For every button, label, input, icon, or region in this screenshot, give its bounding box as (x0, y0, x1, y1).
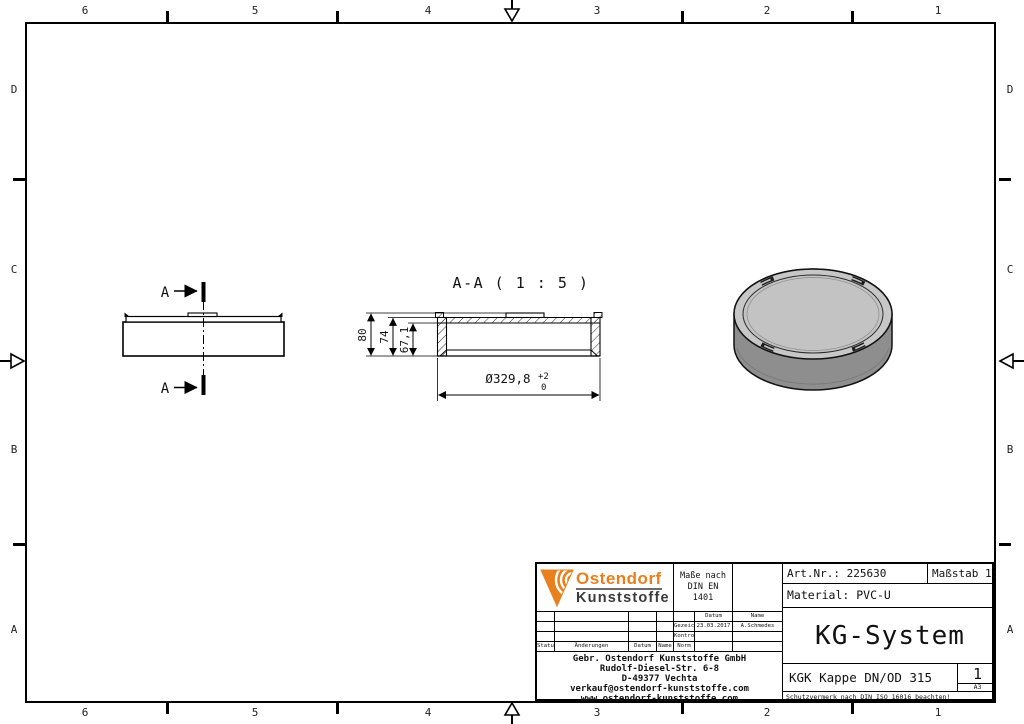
border-ref-top: 2 (757, 4, 777, 18)
centering-mark-bottom (503, 702, 521, 724)
rim-notch-mark (277, 313, 283, 318)
address-email: verkauf@ostendorf-kunststoffe.com (537, 684, 782, 694)
standard-reference: Maße nach DIN EN 1401 (674, 564, 733, 612)
sheet-number: 1 (958, 664, 996, 684)
revision-col-datum: Datum (695, 612, 733, 622)
company-address: Gebr. Ostendorf Kunststoffe GmbH Rudolf-… (537, 652, 782, 703)
border-ref-bottom: 5 (245, 706, 265, 720)
address-line: Rudolf-Diesel-Str. 6-8 (537, 664, 782, 674)
zone-tick (13, 543, 25, 546)
empty-cell (733, 564, 782, 612)
centering-mark-right (998, 352, 1024, 370)
address-line: Gebr. Ostendorf Kunststoffe GmbH (537, 654, 782, 664)
border-ref-top: 1 (928, 4, 948, 18)
border-ref-left: A (4, 623, 24, 637)
paper-format: A3 (958, 684, 996, 692)
brand-name: Ostendorf (576, 569, 662, 590)
section-view: A-A ( 1 : 5 ) 80 74 67,1 Ø329,8 +2 0 (356, 274, 602, 401)
standard-line: Maße nach (674, 571, 732, 582)
revision-row: Gezeichn. 23.03.2017 A.Schmedes (537, 622, 782, 632)
revision-row: Status Änderungen Datum Name Norm (537, 642, 782, 652)
rim-notch-mark (125, 313, 131, 318)
footer-status: Status (537, 642, 555, 652)
border-ref-top: 3 (587, 4, 607, 18)
border-ref-bottom: 4 (418, 706, 438, 720)
border-ref-top: 4 (418, 4, 438, 18)
border-ref-left: D (4, 83, 24, 97)
zone-tick (166, 11, 169, 22)
part-designation: KGK Kappe DN/OD 315 (783, 664, 958, 692)
centering-mark-top (503, 0, 521, 22)
footer-datum: Datum (629, 642, 657, 652)
border-ref-bottom: 1 (928, 706, 948, 720)
dim-mid-height: 74 (378, 330, 391, 344)
zone-tick (166, 703, 169, 714)
iso-view (734, 269, 892, 390)
zone-tick (999, 543, 1011, 546)
border-ref-left: C (4, 263, 24, 277)
dim-tolerance-upper: +2 (538, 372, 549, 382)
dim-tolerance-lower: 0 (541, 383, 546, 393)
title-block: Ostendorf Kunststoffe Maße nach DIN EN 1… (535, 562, 994, 701)
address-line: D-49377 Vechta (537, 674, 782, 684)
standard-line: DIN EN (674, 582, 732, 593)
zone-tick (851, 703, 854, 714)
zone-tick (851, 11, 854, 22)
border-ref-left: B (4, 443, 24, 457)
system-title: KG-System (783, 608, 996, 664)
ostendorf-logo-icon (540, 568, 574, 608)
section-view-title: A-A ( 1 : 5 ) (453, 274, 590, 292)
centering-mark-left (0, 352, 26, 370)
title-block-right: Art.Nr.: 225630 Maßstab 1:5 Material: PV… (782, 564, 996, 703)
revision-row: Datum Name (537, 612, 782, 622)
dim-inner-height: 67,1 (398, 327, 411, 354)
revision-date: 23.03.2017 (695, 622, 733, 632)
section-label: A (161, 285, 170, 301)
border-ref-bottom: 2 (757, 706, 777, 720)
drawing-views-canvas: A A A-A ( 1 : 5 ) 80 74 67,1 Ø (90, 250, 920, 410)
scale: Maßstab 1:5 (928, 564, 996, 584)
revision-name: A.Schmedes (733, 622, 782, 632)
zone-tick (336, 703, 339, 714)
company-logo: Ostendorf Kunststoffe (537, 564, 674, 612)
zone-tick (681, 703, 684, 714)
standard-line: 1401 (674, 593, 732, 604)
border-ref-bottom: 6 (75, 706, 95, 720)
border-ref-right: B (1000, 443, 1020, 457)
material: Material: PVC-U (783, 584, 996, 608)
border-ref-top: 6 (75, 4, 95, 18)
brand-subname: Kunststoffe (576, 590, 670, 606)
zone-tick (13, 178, 25, 181)
section-label: A (161, 381, 170, 397)
revision-label-norm: Norm (674, 642, 695, 652)
revision-col-name: Name (733, 612, 782, 622)
technical-drawing-page: { "border_refs": { "top": ["6","5","4","… (0, 0, 1024, 724)
address-website: www.ostendorf-kunststoffe.com (537, 694, 782, 703)
border-ref-right: D (1000, 83, 1020, 97)
front-view: A A (123, 282, 284, 397)
revision-label-gezeichnet: Gezeichn. (674, 622, 695, 632)
dim-diameter: Ø329,8 (485, 371, 530, 386)
border-ref-right: A (1000, 623, 1020, 637)
protection-notice: Schutzvermerk nach DIN ISO 16016 beachte… (783, 692, 996, 703)
footer-aenderungen: Änderungen (555, 642, 629, 652)
border-ref-top: 5 (245, 4, 265, 18)
border-ref-bottom: 3 (587, 706, 607, 720)
zone-tick (999, 178, 1011, 181)
zone-tick (336, 11, 339, 22)
zone-tick (681, 11, 684, 22)
dim-total-height: 80 (356, 328, 369, 341)
border-ref-right: C (1000, 263, 1020, 277)
footer-name: Name (657, 642, 674, 652)
article-number: Art.Nr.: 225630 (783, 564, 928, 584)
revision-label-kontrolliert: Kontroll. (674, 632, 695, 642)
revision-row: Kontroll. (537, 632, 782, 642)
